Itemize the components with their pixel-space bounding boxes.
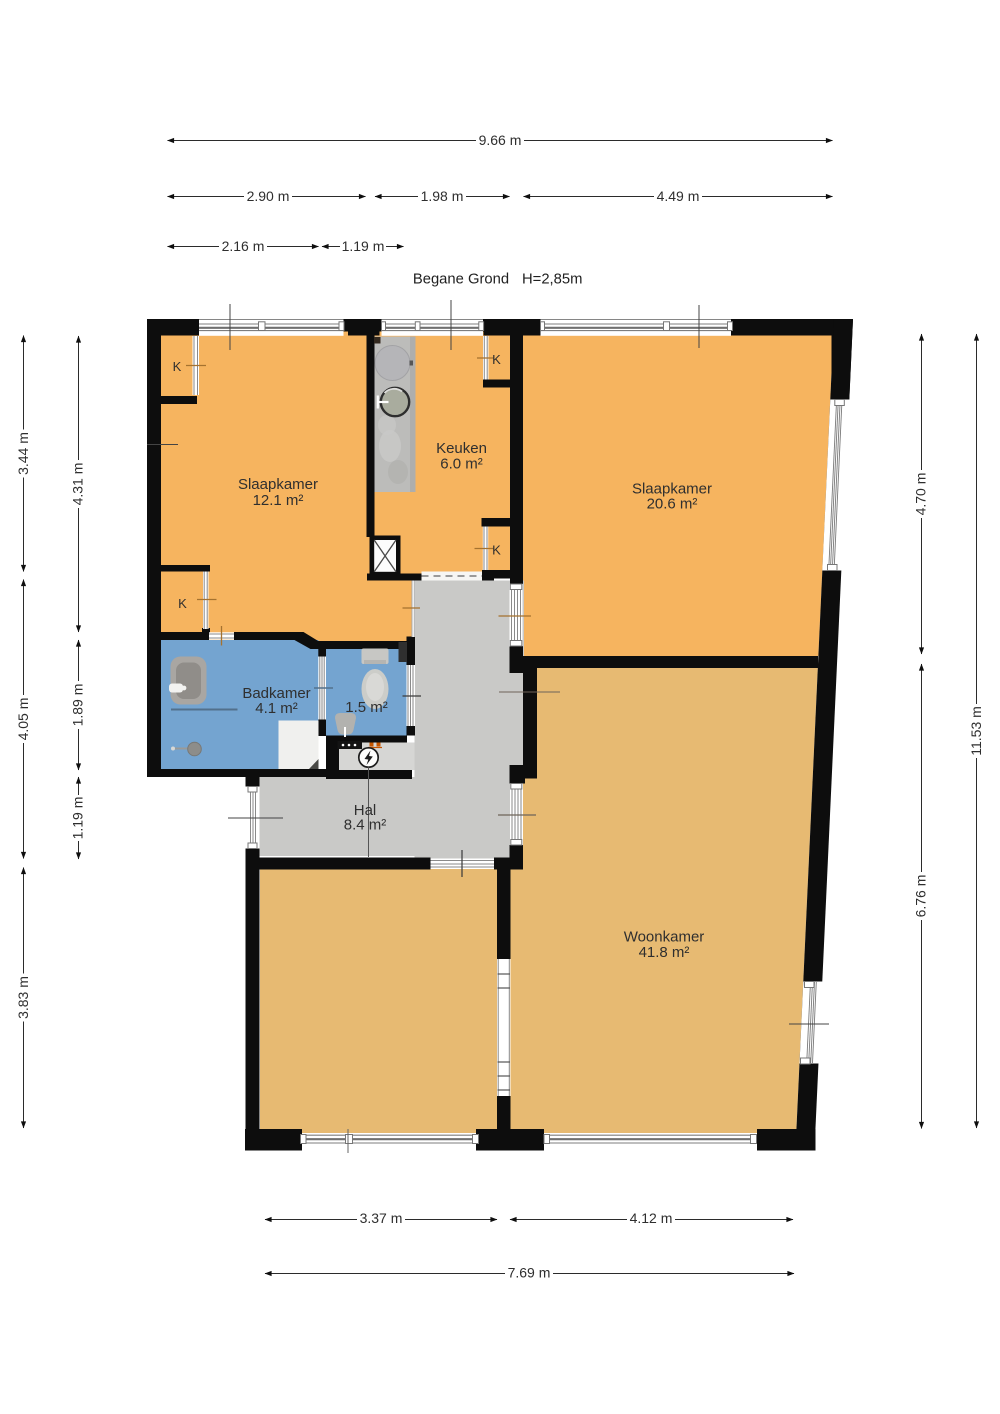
svg-text:K: K [178, 596, 187, 611]
svg-text:6.0 m²: 6.0 m² [440, 456, 483, 473]
svg-text:H=2,85m: H=2,85m [522, 272, 582, 288]
svg-text:K: K [492, 352, 501, 367]
svg-text:Keuken: Keuken [436, 440, 487, 457]
svg-text:3.37 m: 3.37 m [360, 1210, 403, 1226]
svg-text:11.53 m: 11.53 m [968, 706, 984, 756]
svg-text:Begane Grond: Begane Grond [413, 272, 509, 288]
svg-text:1.89 m: 1.89 m [70, 684, 86, 727]
svg-text:2.16 m: 2.16 m [222, 238, 265, 254]
svg-text:K: K [173, 359, 182, 374]
svg-text:Slaapkamer: Slaapkamer [238, 476, 318, 493]
svg-text:7.69 m: 7.69 m [508, 1265, 551, 1281]
svg-text:20.6 m²: 20.6 m² [647, 496, 698, 513]
svg-text:12.1 m²: 12.1 m² [253, 492, 304, 509]
svg-text:4.49 m: 4.49 m [657, 188, 700, 204]
svg-text:4.70 m: 4.70 m [913, 473, 929, 516]
svg-text:1.19 m: 1.19 m [70, 797, 86, 840]
svg-text:8.4 m²: 8.4 m² [344, 817, 387, 834]
svg-text:Woonkamer: Woonkamer [624, 929, 705, 946]
svg-text:4.31 m: 4.31 m [70, 463, 86, 506]
svg-text:41.8 m²: 41.8 m² [639, 944, 690, 961]
svg-text:1.98 m: 1.98 m [421, 188, 464, 204]
svg-text:3.44 m: 3.44 m [15, 432, 31, 475]
svg-text:4.1 m²: 4.1 m² [255, 700, 298, 717]
svg-text:K: K [492, 543, 501, 558]
svg-text:2.90 m: 2.90 m [247, 188, 290, 204]
svg-text:3.83 m: 3.83 m [15, 976, 31, 1019]
svg-text:1.5 m²: 1.5 m² [345, 699, 388, 716]
svg-text:4.12 m: 4.12 m [630, 1210, 673, 1226]
svg-text:9.66 m: 9.66 m [479, 132, 522, 148]
svg-text:6.76 m: 6.76 m [913, 875, 929, 918]
svg-text:1.19 m: 1.19 m [342, 238, 385, 254]
svg-text:4.05 m: 4.05 m [15, 698, 31, 741]
